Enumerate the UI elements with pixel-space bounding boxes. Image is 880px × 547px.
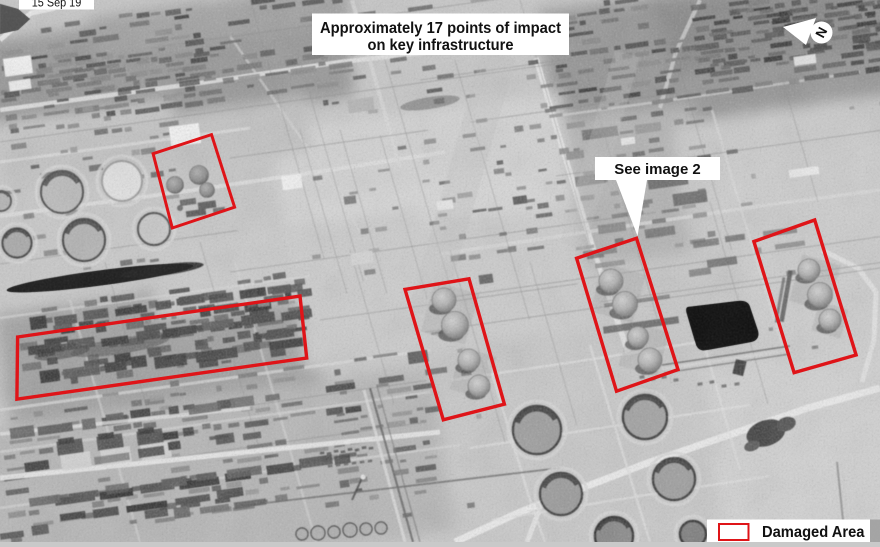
svg-text:15 Sep 19: 15 Sep 19 — [32, 0, 82, 9]
svg-text:Approximately 17 points of imp: Approximately 17 points of impact — [320, 20, 561, 37]
svg-text:on key infrastructure: on key infrastructure — [368, 37, 514, 54]
svg-text:See image 2: See image 2 — [614, 161, 701, 178]
svg-text:Damaged Area: Damaged Area — [762, 524, 865, 541]
